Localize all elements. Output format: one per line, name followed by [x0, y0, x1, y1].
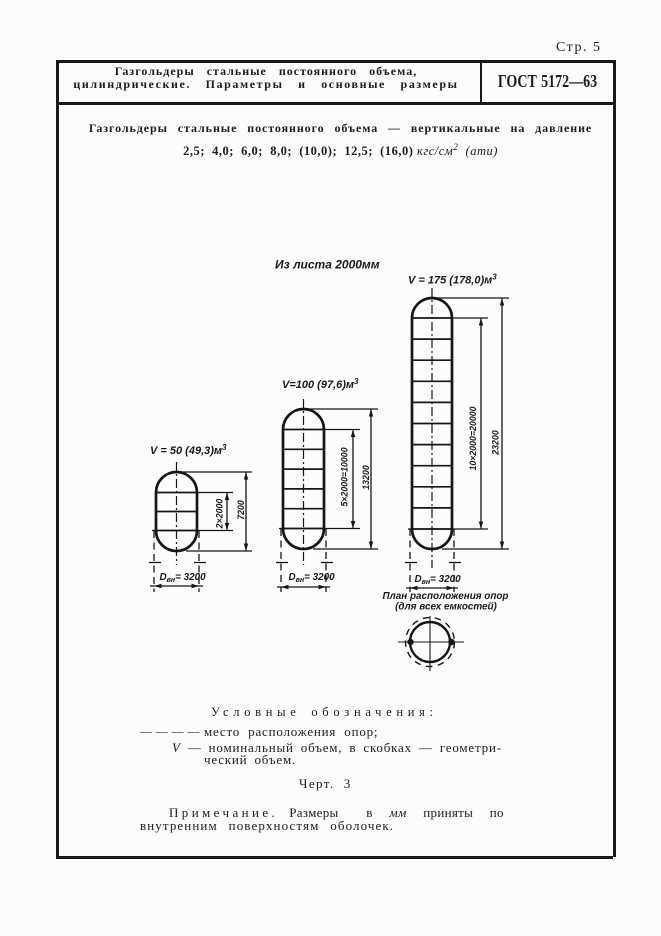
svg-text:Dвн= 3200: Dвн= 3200: [160, 572, 207, 584]
svg-text:Dвн= 3200: Dвн= 3200: [415, 574, 462, 586]
svg-text:23200: 23200: [491, 430, 501, 456]
svg-text:(для всех емкостей): (для всех емкостей): [395, 602, 497, 613]
svg-text:Из листа 2000мм: Из листа 2000мм: [275, 258, 380, 272]
svg-text:5×2000=10000: 5×2000=10000: [340, 447, 350, 506]
svg-text:V=100 (97,6)м3: V=100 (97,6)м3: [282, 377, 359, 391]
svg-text:10×2000=20000: 10×2000=20000: [468, 406, 478, 470]
svg-text:7200: 7200: [236, 500, 246, 520]
svg-text:2×2000: 2×2000: [215, 499, 225, 530]
svg-text:V = 175 (178,0)м3: V = 175 (178,0)м3: [408, 273, 497, 287]
svg-text:V = 50 (49,3)м3: V = 50 (49,3)м3: [150, 443, 227, 457]
svg-text:План расположения опор: План расположения опор: [383, 591, 509, 602]
svg-text:Dвн= 3200: Dвн= 3200: [289, 572, 336, 584]
svg-text:13200: 13200: [361, 465, 371, 490]
